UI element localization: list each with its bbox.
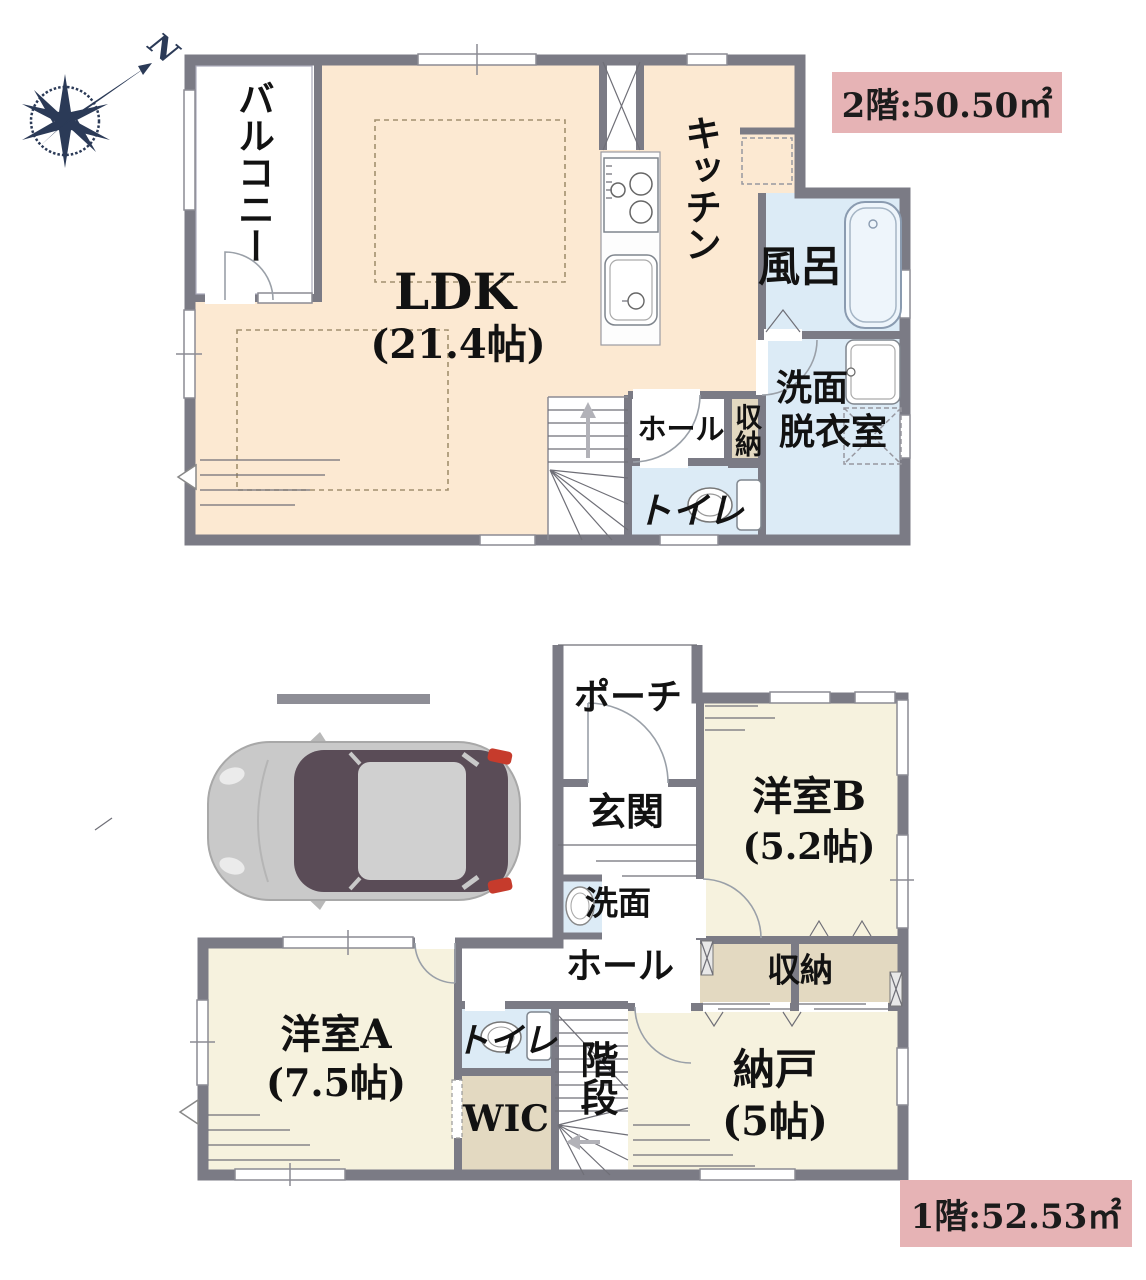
floor2-plan [176, 44, 910, 545]
label-room-b-size: (5.2帖) [743, 829, 876, 867]
label-entrance: 玄関 [588, 792, 664, 832]
floor-plan-page: N [0, 0, 1146, 1280]
floor2-area-text: 2階:50.50㎡ [842, 78, 1053, 127]
washbasin-2f-icon [846, 340, 900, 404]
label-ldk: LDK [394, 266, 516, 319]
floor1-area-text: 1階:52.53㎡ [911, 1189, 1122, 1238]
label-kitchen: キッチン [681, 114, 720, 262]
label-storeroom: 納戸 [733, 1048, 817, 1092]
floor2-area-badge: 2階:50.50㎡ [832, 72, 1062, 133]
floor1-area-badge: 1階:52.53㎡ [900, 1180, 1132, 1247]
stove-icon [604, 158, 658, 232]
hall1-west-floor [458, 940, 558, 1007]
bathtub-icon [845, 202, 901, 328]
label-washroom1: 洗面 [776, 370, 848, 408]
label-room-b: 洋室B [752, 776, 866, 818]
label-toilet-2f: トイレ [636, 493, 744, 531]
floor-plan-graphic: N [0, 0, 1146, 1280]
vent-1f [180, 1100, 198, 1124]
label-room-a-size: (7.5帖) [266, 1063, 406, 1103]
kitchen-sink-icon [605, 255, 657, 325]
label-wic: WIC [463, 1101, 549, 1139]
wic-folding-door [452, 1080, 462, 1138]
parking-wall-bar [277, 694, 430, 704]
label-ldk-size: (21.4帖) [370, 324, 545, 366]
label-toilet-1f: トイレ [455, 1024, 557, 1060]
label-stairs: 階段 [576, 1040, 616, 1116]
label-washbasin: 洗面 [585, 887, 651, 922]
label-bath: 風呂 [758, 245, 842, 289]
label-storeroom-size: (5帖) [722, 1101, 828, 1143]
label-porch: ポーチ [574, 679, 682, 717]
label-washroom2: 脱衣室 [779, 414, 887, 452]
car-icon [208, 732, 520, 910]
label-hall-1f: ホール [566, 948, 674, 986]
label-hall-2f: ホール [637, 414, 724, 444]
label-room-a: 洋室A [280, 1014, 391, 1056]
compass-icon: N [22, 26, 186, 168]
label-storage-2f: 収納 [731, 403, 759, 457]
label-storage-1f: 収納 [767, 954, 833, 989]
label-balcony: バルコニー [234, 80, 273, 265]
